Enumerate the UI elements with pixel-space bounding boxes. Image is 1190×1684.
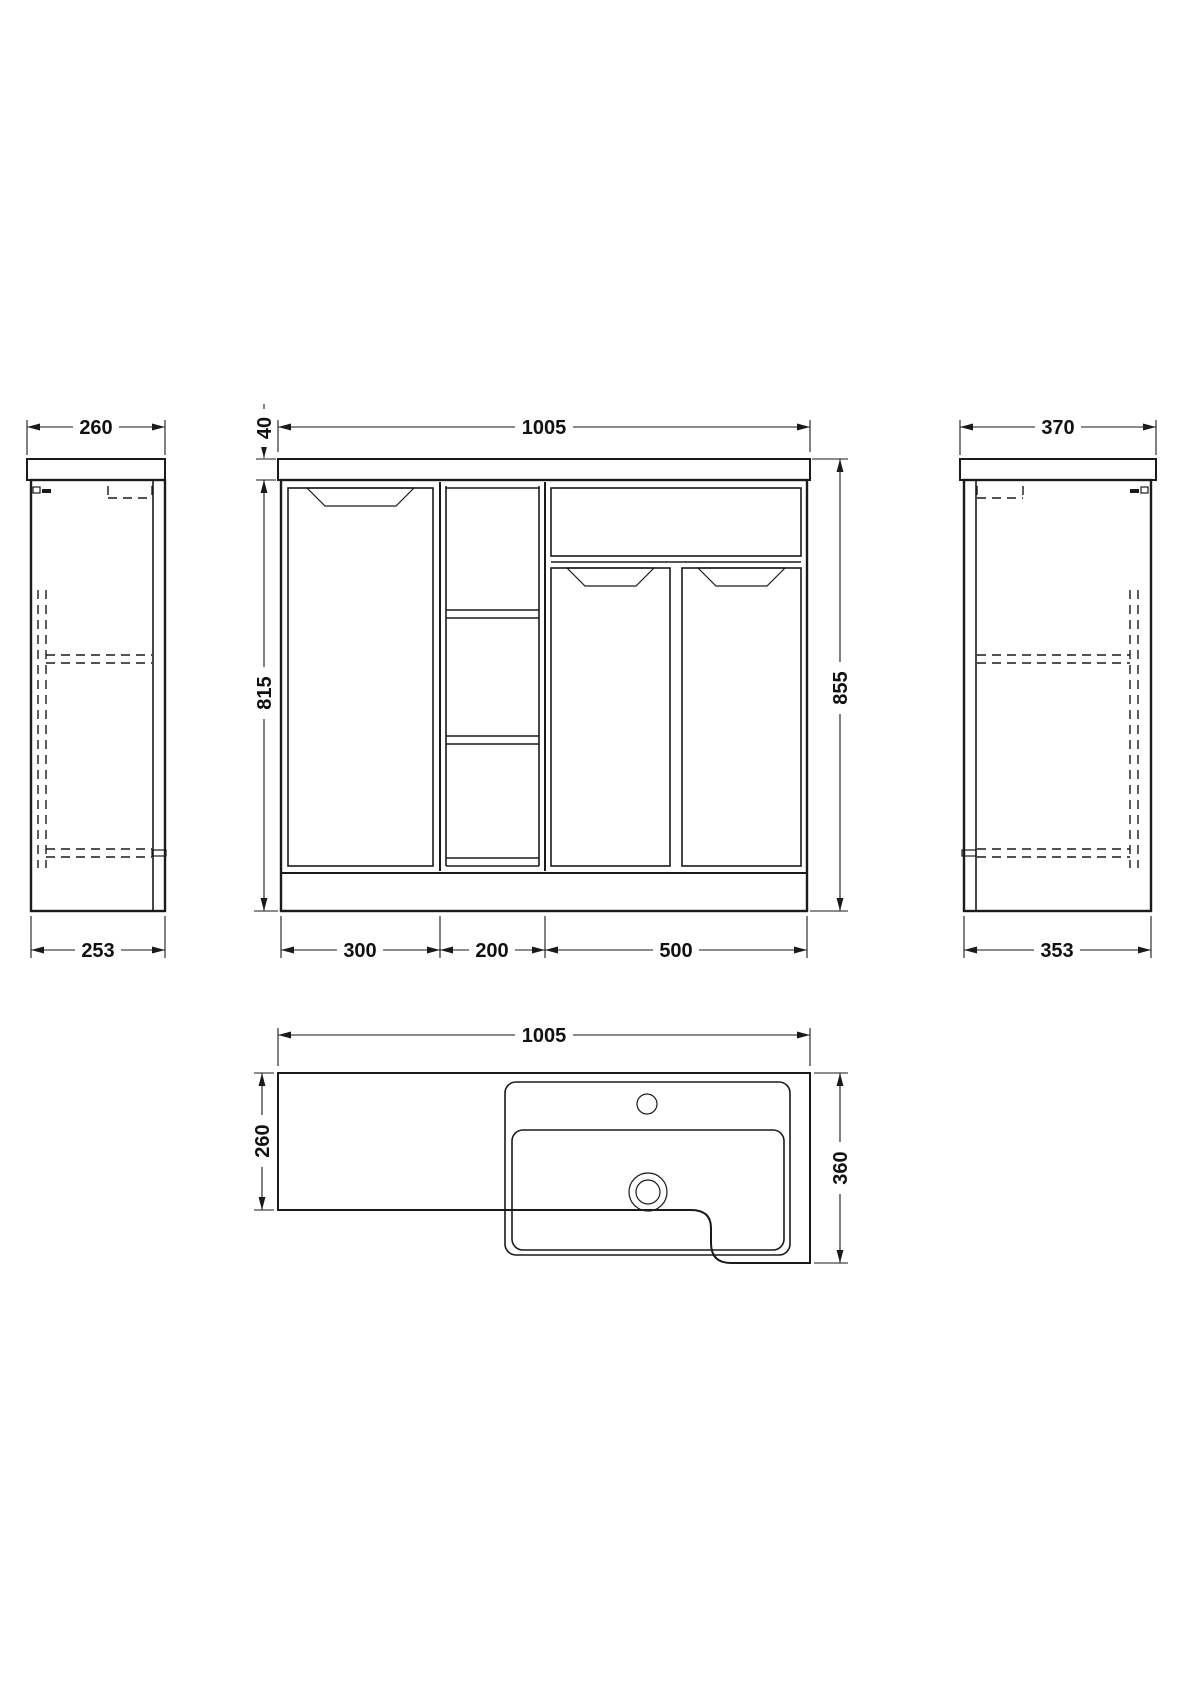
dim-right-bottom-353: 353 [964,916,1151,962]
dim-text: 360 [830,1151,852,1184]
bracket-outline [977,486,1023,498]
dim-text: 353 [1040,940,1073,962]
dim-text: 370 [1041,417,1074,439]
right-side-cabinet [964,480,1151,911]
dim-text-rotated: 855 [829,662,852,714]
hinge-arm [42,489,51,493]
dim-text: 300 [343,940,376,962]
recessed-handle [567,568,654,586]
dim-text: 253 [81,940,114,962]
dim-plan-depth-360: 360 [814,1073,852,1263]
technical-drawing-canvas: 260 253 [0,0,1190,1684]
cistern-panel [551,488,801,556]
front-worktop [278,459,810,480]
right-side-hidden-lines [962,590,1138,868]
dim-right-top-370: 370 [960,416,1156,455]
dim-worktop-40: 40 [253,404,276,480]
dim-text-rotated: 40 [253,409,276,447]
dim-left-top-260: 260 [27,416,165,455]
wc-door-right [682,568,801,866]
waste-outer [629,1173,667,1211]
dim-text-rotated: 815 [253,667,276,719]
dim-cabinet-height-815: 815 [253,480,278,911]
hinge-detail [33,487,51,493]
hinge-arm [1130,489,1139,493]
dim-text: 500 [659,940,692,962]
left-side-worktop [27,459,165,480]
hinge-plate [1141,487,1148,493]
dim-text: 1005 [522,417,567,439]
dim-text: 200 [475,940,508,962]
left-side-hidden-lines [38,590,166,868]
dim-plan-depth-260: 260 [251,1073,274,1210]
right-side-worktop [960,459,1156,480]
dim-text: 855 [830,671,852,704]
recessed-handle [307,488,414,506]
basin-outer-rim [505,1082,790,1255]
dim-text-rotated: 360 [829,1142,852,1194]
dim-text: 1005 [522,1025,567,1047]
dim-front-sections: 300 200 500 [281,916,807,962]
hinge-plate [33,487,40,493]
worktop-outline [278,1073,810,1263]
right-side-bracket-dashed [977,486,1023,498]
dim-text: 40 [254,417,276,439]
dim-text: 815 [254,676,276,709]
tap-hole [637,1094,657,1114]
right-side-view: 370 353 [960,416,1156,962]
front-wc-unit [551,488,801,866]
plan-view: 1005 260 360 [251,1024,852,1263]
recessed-handle [698,568,785,586]
left-side-view: 260 253 [27,416,166,962]
dim-text: 260 [79,417,112,439]
dim-text: 260 [252,1124,274,1157]
waste-inner [636,1180,660,1204]
front-left-door [288,488,433,866]
wc-door-left [551,568,670,866]
dim-plan-width-1005: 1005 [278,1024,810,1066]
hinge-detail [1130,487,1148,493]
bracket-outline [108,486,152,498]
dim-text-rotated: 260 [251,1115,274,1167]
front-view: 1005 40 815 [253,404,852,962]
left-side-cabinet [31,480,165,911]
dim-total-height-855: 855 [810,459,852,911]
front-shelf-column [440,482,545,871]
door-panel [288,488,433,866]
dim-front-width-1005: 1005 [278,416,810,452]
basin-bowl [512,1130,784,1250]
basin [505,1082,790,1255]
dim-left-bottom-253: 253 [31,916,165,962]
drawing-page: 260 253 [0,0,1190,1684]
left-side-bracket-dashed [108,486,152,498]
